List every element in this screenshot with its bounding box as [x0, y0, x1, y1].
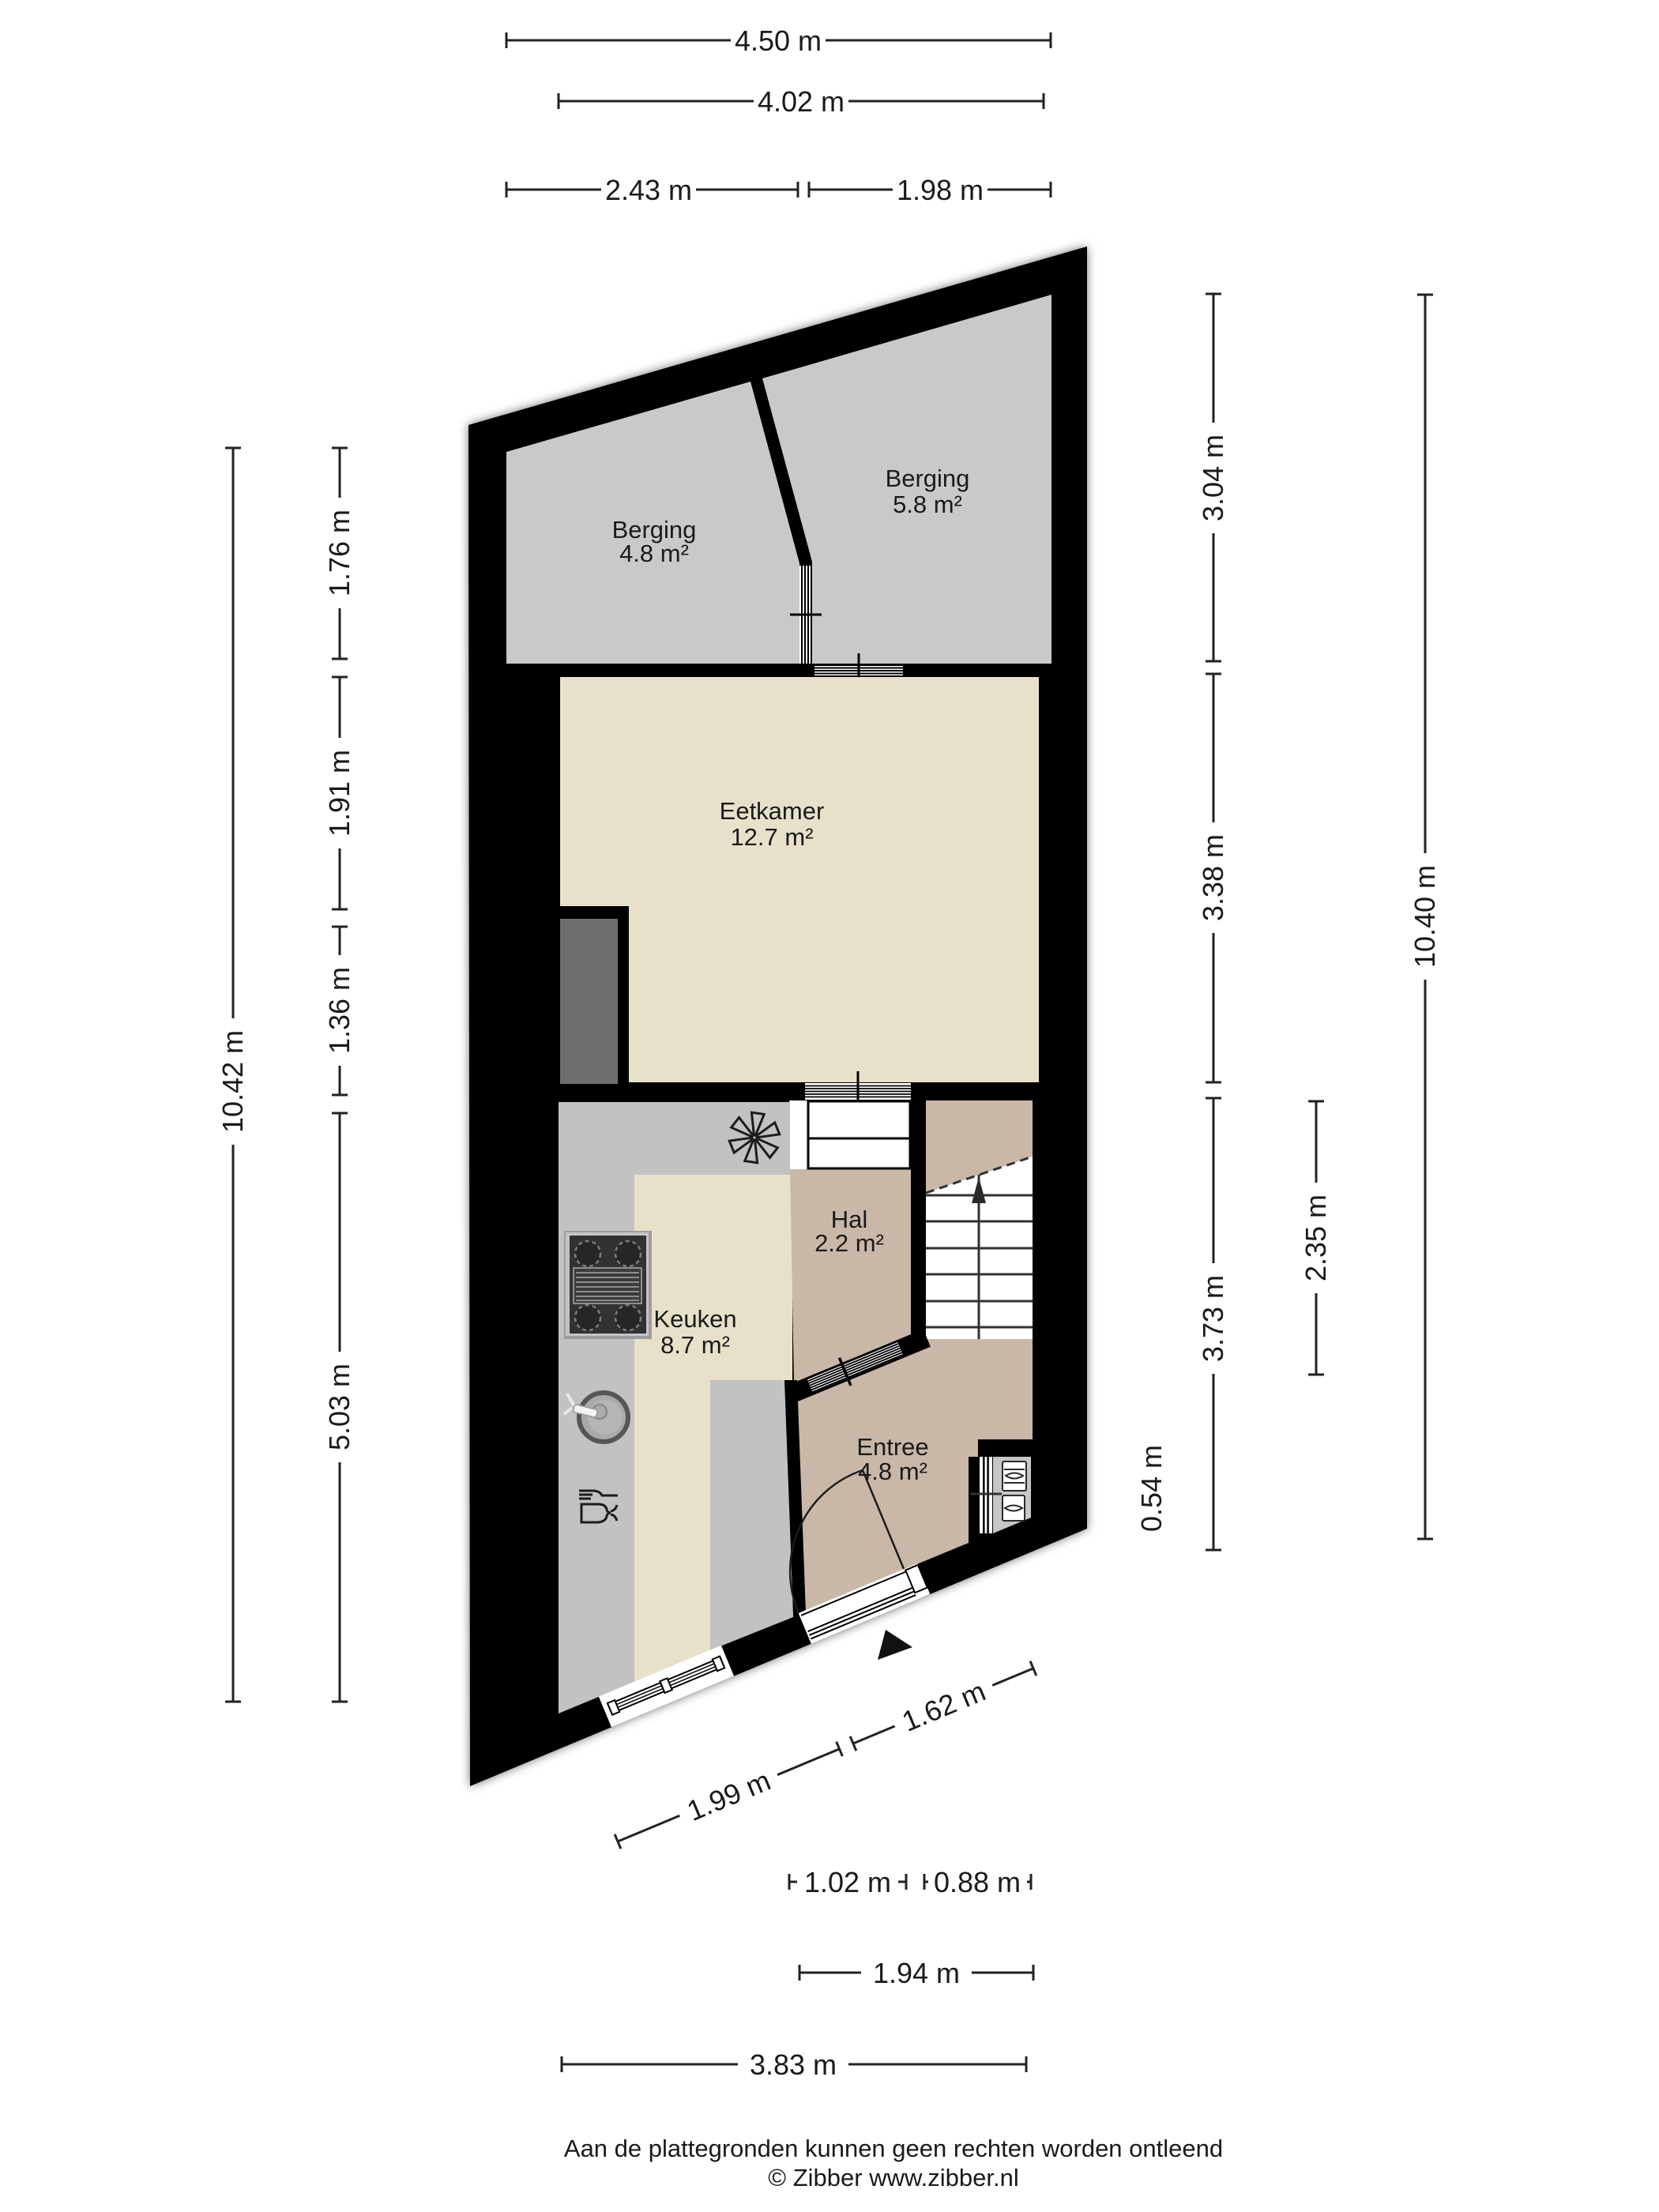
- svg-text:5.8 m²: 5.8 m²: [893, 491, 962, 518]
- svg-text:3.04 m: 3.04 m: [1197, 434, 1229, 521]
- svg-text:1.91 m: 1.91 m: [323, 750, 355, 837]
- svg-text:2.43 m: 2.43 m: [605, 174, 692, 206]
- svg-text:2.35 m: 2.35 m: [1300, 1194, 1332, 1281]
- svg-text:4.8 m²: 4.8 m²: [858, 1458, 927, 1485]
- svg-text:Entree: Entree: [856, 1433, 928, 1461]
- svg-text:1.76 m: 1.76 m: [323, 510, 355, 596]
- svg-text:Keuken: Keuken: [653, 1305, 736, 1333]
- svg-text:12.7 m²: 12.7 m²: [730, 823, 813, 851]
- svg-text:3.38 m: 3.38 m: [1197, 834, 1229, 921]
- svg-text:0.54 m: 0.54 m: [1135, 1445, 1168, 1532]
- svg-text:0.88 m: 0.88 m: [934, 1866, 1021, 1898]
- svg-text:Berging: Berging: [886, 465, 970, 492]
- svg-text:1.02 m: 1.02 m: [804, 1866, 891, 1898]
- svg-text:1.94 m: 1.94 m: [873, 1957, 960, 1989]
- svg-text:© Zibber www.zibber.nl: © Zibber www.zibber.nl: [768, 2164, 1018, 2191]
- svg-text:5.03 m: 5.03 m: [323, 1364, 355, 1450]
- svg-text:1.98 m: 1.98 m: [897, 174, 984, 206]
- svg-text:8.7 m²: 8.7 m²: [660, 1331, 730, 1359]
- svg-text:4.50 m: 4.50 m: [735, 24, 822, 57]
- svg-text:2.2 m²: 2.2 m²: [814, 1229, 884, 1257]
- svg-text:1.36 m: 1.36 m: [323, 967, 355, 1054]
- svg-text:3.83 m: 3.83 m: [750, 2048, 837, 2081]
- svg-text:1.62 m: 1.62 m: [897, 1675, 990, 1738]
- svg-text:1.99 m: 1.99 m: [683, 1764, 775, 1827]
- svg-text:4.8 m²: 4.8 m²: [619, 540, 689, 567]
- svg-text:4.02 m: 4.02 m: [758, 85, 845, 118]
- svg-text:10.40 m: 10.40 m: [1409, 865, 1441, 968]
- svg-text:Eetkamer: Eetkamer: [720, 797, 825, 825]
- svg-text:3.73 m: 3.73 m: [1197, 1275, 1229, 1362]
- svg-text:10.42 m: 10.42 m: [216, 1030, 249, 1133]
- svg-text:Aan de plattegronden kunnen ge: Aan de plattegronden kunnen geen rechten…: [564, 2135, 1223, 2162]
